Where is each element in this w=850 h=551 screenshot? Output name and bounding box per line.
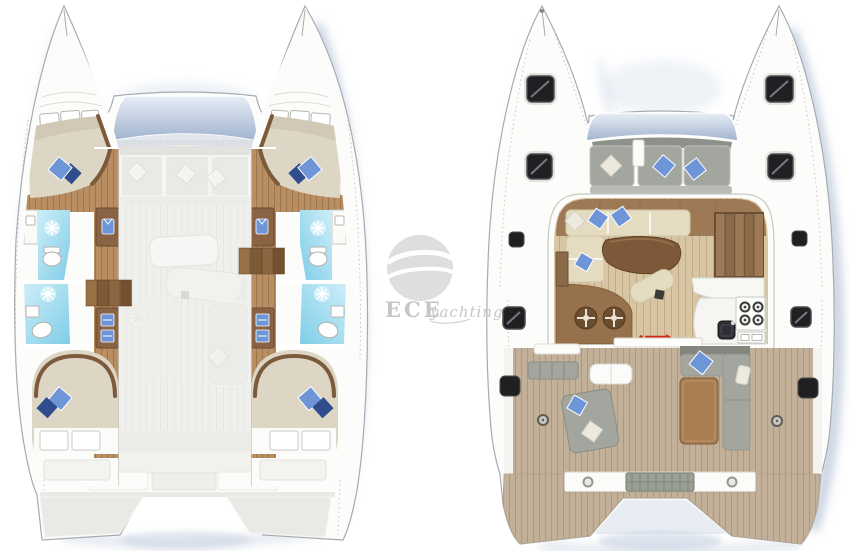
stove-icon [736, 297, 765, 330]
hatch-icon [766, 152, 795, 181]
saloon [548, 194, 774, 350]
cockpit-table [680, 378, 718, 444]
cockpit-modules [590, 364, 632, 384]
hatch-icon [503, 307, 525, 329]
main-deck-plan [487, 6, 837, 551]
galley [694, 297, 766, 344]
transom [503, 472, 820, 550]
cleat-icon [584, 478, 593, 487]
ghost-saloon [112, 134, 258, 474]
forward-cockpit [590, 138, 732, 195]
cleat-icon [728, 478, 737, 487]
catamaran-floorplan-image: ECE yachting [0, 0, 850, 551]
hatch-icon [525, 74, 556, 104]
deck-fitting-icon [772, 416, 782, 426]
nav-seat-icon [603, 307, 625, 329]
companionway-steps [86, 280, 132, 306]
sliding-door [614, 338, 702, 347]
hatch-icon [764, 74, 795, 104]
aft-cockpit [504, 344, 822, 474]
hatch-icon [791, 307, 811, 327]
ghost-table [149, 234, 218, 268]
hatch-icon [509, 232, 524, 247]
helm-seat [528, 362, 578, 379]
watermark-logo [387, 235, 453, 301]
hatch-icon [525, 152, 554, 181]
side-bench [561, 388, 620, 454]
floorplan-canvas: ECE yachting [0, 0, 850, 551]
hatch-icon [792, 231, 807, 246]
sink-icon [718, 321, 735, 339]
oven-icon [738, 332, 765, 343]
side-cabinet [556, 252, 568, 286]
hull-stairs [714, 212, 764, 278]
nav-seat-icon [575, 307, 597, 329]
hatch-icon [500, 376, 520, 396]
lower-deck-plan [8, 0, 368, 549]
watermark-suffix: yachting [429, 303, 504, 321]
companionway-steps [239, 248, 285, 274]
cockpit-console [633, 140, 644, 166]
transom-grate [626, 473, 694, 491]
hatch-icon [798, 378, 818, 398]
deck-fitting-icon [538, 415, 548, 425]
